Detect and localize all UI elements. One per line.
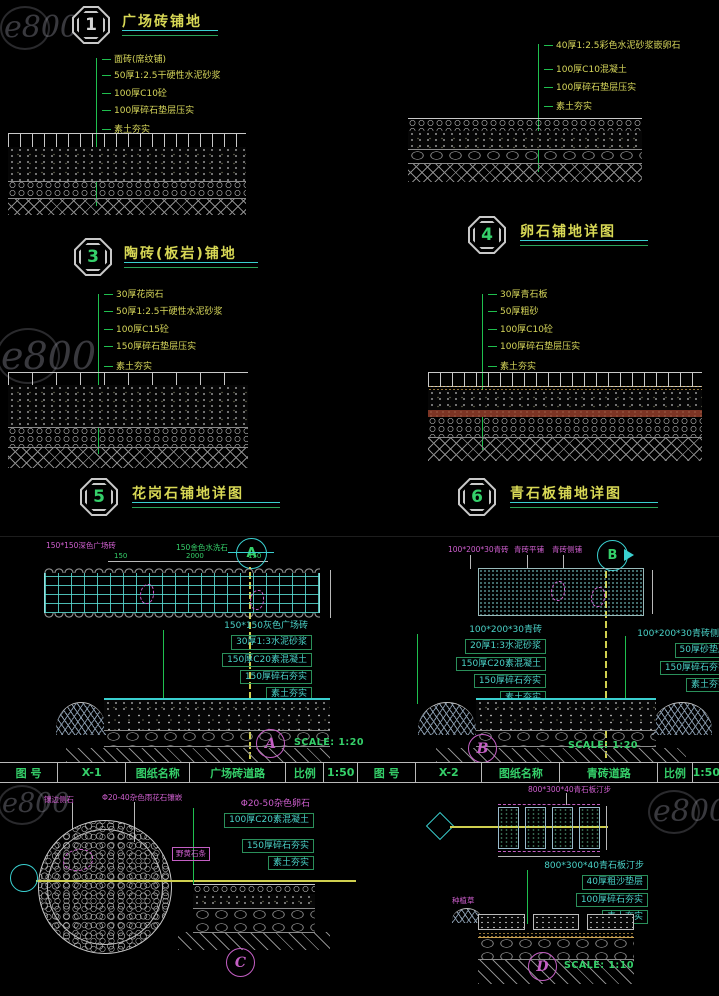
titleblock-scale: 1:50	[324, 763, 357, 782]
dim-line	[606, 806, 607, 850]
grass-mound-hatch	[56, 702, 106, 735]
layer-note: 100厚碎石夯实	[576, 893, 648, 907]
stone-label: 野黄石条	[172, 847, 210, 861]
subgrade-hatch	[178, 932, 330, 950]
section-cut-bubble-a: A	[236, 538, 267, 569]
layer-note: 30厚青石板	[488, 291, 547, 300]
title-underline	[510, 502, 658, 508]
layer-note: 100厚C10砼	[102, 90, 167, 99]
detail-4-title: 卵石铺地详图	[520, 221, 616, 241]
detail-5-badge-icon: 5	[80, 478, 118, 516]
layer-note: 40厚1:2.5彩色水泥砂浆嵌卵石	[544, 42, 681, 51]
plan-label: 镶边侧石	[44, 796, 74, 804]
plan-label: 种植草	[452, 897, 475, 905]
detail-3-number: 3	[81, 245, 105, 269]
leader-spine	[625, 636, 626, 700]
detail-bubble-a: A	[256, 729, 285, 758]
plan-strip-plaza-brick	[44, 568, 320, 618]
layer-note: 素土夯实	[544, 103, 592, 112]
detail-bubble-c: C	[226, 948, 255, 977]
detail-6-number: 6	[465, 485, 489, 509]
titleblock-label: 比例	[658, 763, 693, 782]
subgrade-hatch	[66, 748, 330, 762]
grass-mound-hatch	[652, 702, 712, 735]
detail-4-badge-icon: 4	[468, 216, 506, 254]
detail-bubble-b: B	[468, 734, 497, 763]
scale-note: SCALE: 1:10	[564, 960, 634, 971]
detail-6-title: 青石板铺地详图	[510, 483, 622, 503]
plan-label: 青砖侧铺	[552, 546, 582, 554]
plan-label: 800*300*40青石板汀步	[528, 786, 611, 794]
layer-note: 150厚碎石夯实	[474, 674, 546, 688]
watermark-e800: e800	[0, 780, 68, 832]
plan-stepping-stones	[498, 804, 600, 852]
grass-mound-hatch	[418, 702, 476, 735]
layer-note: 100厚碎石垫层压实	[488, 343, 580, 352]
leader-line	[72, 803, 73, 829]
layer-note: 150*150灰色广场砖	[220, 620, 312, 632]
layer-note: 面砖(席纹铺)	[102, 56, 166, 65]
titleblock-label: 图纸名称	[482, 763, 560, 782]
titleblock-label: 图 号	[0, 763, 58, 782]
dim-line	[330, 570, 331, 618]
detail-1-number: 1	[79, 13, 103, 37]
layer-note: 100厚C10混凝土	[544, 66, 627, 75]
layer-notes-a: 150*150灰色广场砖 30厚1:3水泥砂浆 150厚C20素混凝土 150厚…	[166, 620, 312, 702]
layer-note: 50厚1:2.5干硬性水泥砂浆	[102, 72, 221, 81]
titleblock-scale: 1:50	[693, 763, 719, 782]
section-drawing-c	[193, 884, 315, 932]
scale-note: SCALE: 1:20	[568, 740, 638, 751]
dim-line	[498, 856, 600, 857]
layer-note: 150厚碎石夯实	[240, 670, 312, 684]
title-underline	[124, 262, 258, 268]
dim-text: 150	[114, 553, 127, 560]
titleblock-label: 比例	[286, 763, 324, 782]
bubble-axis-line	[228, 552, 274, 553]
section-cut-line	[36, 880, 356, 882]
plan-label: 100*200*30青砖	[448, 546, 509, 554]
layer-note: 素土夯实	[268, 856, 314, 870]
title-underline	[520, 240, 648, 246]
leader-spine	[163, 630, 164, 704]
section-drawing-pebble	[408, 118, 642, 184]
watermark-e800: e800	[0, 0, 72, 64]
layer-note: 30厚花岗石	[104, 291, 163, 300]
title-underline	[122, 30, 218, 36]
layer-note: 40厚粗沙垫层	[582, 875, 648, 889]
title-underline	[132, 502, 280, 508]
material-squiggle	[591, 587, 605, 607]
plan-label: 青砖平铺	[514, 546, 544, 554]
titleblock-drawing-no: X-1	[58, 763, 126, 782]
layer-note: 素土夯实	[488, 363, 536, 372]
layer-note: 150厚C20素混凝土	[456, 657, 546, 671]
material-squiggle	[551, 581, 565, 601]
plan-label: 150金色水洗石	[176, 544, 228, 552]
detail-1-badge-icon: 1	[72, 6, 110, 44]
layer-note: 100*200*30青砖	[465, 624, 546, 636]
dim-text: 2000	[186, 553, 204, 560]
layer-note: 20厚1:3水泥砂浆	[465, 639, 546, 653]
leader-line	[563, 555, 564, 569]
layer-notes-c: Φ20-50杂色卵石 100厚C20素混凝土 150厚碎石夯实 素土夯实	[196, 798, 314, 870]
layer-note: 50厚砂垫层	[675, 643, 719, 657]
leader-line	[527, 555, 528, 569]
section-drawing-plaza-brick	[8, 133, 246, 217]
layer-note: 150厚碎石夯实	[242, 839, 314, 853]
scale-note: SCALE: 1:20	[294, 737, 364, 748]
layer-note: 50厚1:2.5干硬性水泥砂浆	[104, 308, 223, 317]
layer-note: Φ20-50杂色卵石	[237, 798, 314, 810]
detail-3-badge-icon: 3	[74, 238, 112, 276]
detail-1-title: 广场砖铺地	[122, 11, 202, 31]
layer-note: 150厚C20素混凝土	[222, 653, 312, 667]
section-drawing-bluestone	[428, 372, 702, 464]
dim-line	[652, 570, 653, 614]
layer-note: 100厚碎石垫层压实	[102, 107, 194, 116]
titleblock-right: 图 号 X-2 图纸名称 青砖道路 比例 1:50	[357, 762, 719, 783]
detail-3-title: 陶砖(板岩)铺地	[124, 243, 237, 263]
titleblock-label: 图 号	[358, 763, 416, 782]
detail-5-title: 花岗石铺地详图	[132, 483, 244, 503]
titleblock-drawing-no: X-2	[416, 763, 482, 782]
cut-arrow-icon	[624, 549, 634, 561]
leader-line	[470, 555, 471, 569]
plan-label: 150*150深色广场砖	[46, 542, 116, 550]
layer-note: 50厚粗砂	[488, 308, 538, 317]
detail-4-number: 4	[475, 223, 499, 247]
plan-pebble-circle	[38, 820, 172, 954]
leader-spine	[193, 808, 194, 884]
titleblock-drawing-name: 广场砖道路	[190, 763, 286, 782]
watermark-e800: e800	[648, 784, 719, 844]
layer-note: 100*200*30青砖侧铺	[633, 628, 719, 640]
detail-5-number: 5	[87, 485, 111, 509]
titleblock-label: 图纸名称	[126, 763, 190, 782]
detail-6-badge-icon: 6	[458, 478, 496, 516]
sheet-divider	[0, 536, 719, 537]
detail-bubble-d: D	[528, 952, 557, 981]
layer-note: 100厚C10砼	[488, 326, 553, 335]
layer-note: 100厚C15砼	[104, 326, 169, 335]
layer-note: 素土夯实	[104, 363, 152, 372]
titleblock-left: 图 号 X-1 图纸名称 广场砖道路 比例 1:50	[0, 762, 357, 783]
leader-spine	[417, 634, 418, 704]
layer-note: 150厚碎石垫层压实	[104, 343, 196, 352]
layer-note: 素土夯实	[686, 678, 719, 692]
section-drawing-granite	[8, 372, 248, 470]
layer-note: 150厚碎石夯实	[660, 661, 719, 675]
plan-label: Φ20-40杂色雨花石镶嵌	[102, 794, 182, 802]
titleblock-drawing-name: 青砖道路	[560, 763, 658, 782]
layer-note: 100厚碎石垫层压实	[544, 84, 636, 93]
section-drawing-d	[478, 912, 634, 984]
plan-strip-grey-brick	[478, 568, 644, 616]
layer-note: 800*300*40青石板汀步	[540, 860, 648, 872]
layer-note: 100厚C20素混凝土	[224, 813, 314, 827]
layer-notes-b-main: 100*200*30青砖 20厚1:3水泥砂浆 150厚C20素混凝土 150厚…	[420, 624, 546, 706]
section-cut-marker-icon	[10, 864, 38, 892]
cad-paving-detail-sheet: e800 e800 e800 e800 1 广场砖铺地 面砖(席纹铺) 50厚1…	[0, 0, 719, 996]
layer-note: 30厚1:3水泥砂浆	[231, 635, 312, 649]
layer-notes-b-side: 100*200*30青砖侧铺 50厚砂垫层 150厚碎石夯实 素土夯实	[628, 628, 719, 692]
